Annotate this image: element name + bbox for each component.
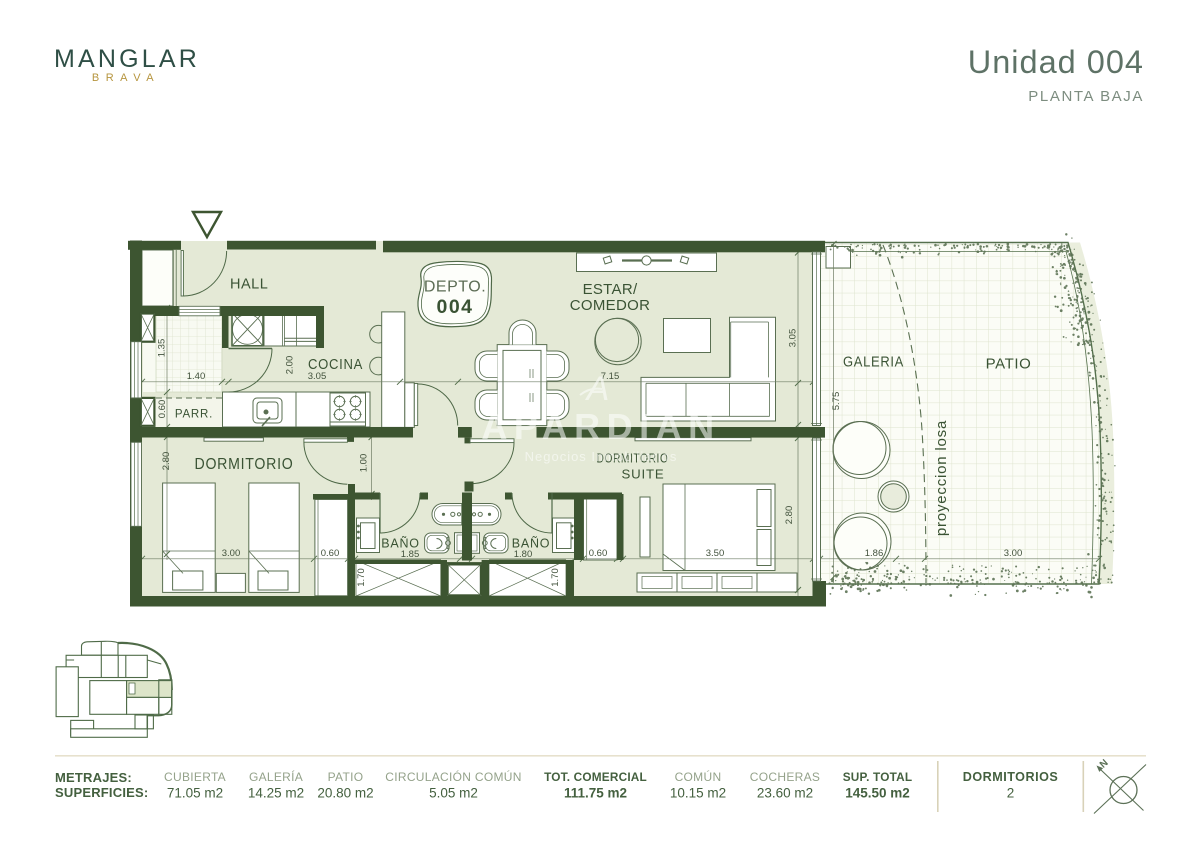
svg-text:PARR.: PARR. [175, 409, 213, 421]
svg-text:proyeccion losa: proyeccion losa [933, 420, 950, 536]
svg-text:CUBIERTA: CUBIERTA [164, 770, 226, 784]
svg-text:GALERÍA: GALERÍA [249, 769, 303, 784]
svg-text:MANGLAR: MANGLAR [54, 45, 200, 73]
svg-text:COCINA: COCINA [308, 356, 363, 373]
svg-text:145.50 m2: 145.50 m2 [845, 786, 910, 801]
svg-text:1.86: 1.86 [865, 548, 884, 559]
svg-text:COMÚN: COMÚN [675, 769, 722, 784]
svg-text:20.80 m2: 20.80 m2 [317, 786, 373, 801]
svg-text:1.80: 1.80 [514, 549, 533, 560]
svg-text:2.80: 2.80 [784, 506, 795, 525]
svg-text:COMEDOR: COMEDOR [570, 297, 650, 314]
svg-text:Unidad 004: Unidad 004 [968, 44, 1144, 80]
svg-text:ESTAR/: ESTAR/ [583, 281, 638, 298]
svg-text:1.00: 1.00 [359, 454, 370, 473]
svg-text:23.60 m2: 23.60 m2 [757, 786, 813, 801]
svg-text:1.70: 1.70 [550, 568, 561, 587]
svg-text:3.00: 3.00 [1004, 548, 1023, 559]
svg-text:PATIO: PATIO [328, 770, 364, 784]
svg-text:BAÑO: BAÑO [512, 537, 551, 551]
svg-text:DEPTO.: DEPTO. [424, 279, 486, 296]
svg-text:0.60: 0.60 [321, 548, 340, 559]
svg-text:COCHERAS: COCHERAS [750, 770, 820, 784]
svg-text:111.75 m2: 111.75 m2 [564, 786, 627, 801]
svg-text:BAÑO: BAÑO [381, 537, 420, 551]
svg-text:SUPERFICIES:: SUPERFICIES: [55, 785, 148, 800]
svg-text:1.35: 1.35 [157, 339, 168, 358]
svg-text:BRAVA: BRAVA [92, 72, 160, 84]
svg-text:2: 2 [1007, 786, 1015, 801]
svg-text:3.00: 3.00 [222, 548, 241, 559]
svg-text:3.05: 3.05 [788, 329, 799, 348]
svg-text:TOT. COMERCIAL: TOT. COMERCIAL [544, 770, 647, 784]
svg-text:10.15 m2: 10.15 m2 [670, 786, 726, 801]
svg-text:HALL: HALL [230, 277, 268, 293]
svg-text:71.05 m2: 71.05 m2 [167, 786, 223, 801]
svg-text:1.85: 1.85 [401, 549, 420, 560]
svg-text:5.05 m2: 5.05 m2 [429, 786, 478, 801]
svg-text:APARDIAN: APARDIAN [481, 406, 720, 447]
svg-text:2.80: 2.80 [161, 452, 172, 471]
svg-text:004: 004 [436, 296, 473, 318]
svg-text:3.50: 3.50 [706, 548, 725, 559]
svg-text:DORMITORIOS: DORMITORIOS [963, 770, 1059, 784]
svg-text:CIRCULACIÓN COMÚN: CIRCULACIÓN COMÚN [385, 769, 521, 784]
svg-text:1.70: 1.70 [356, 568, 367, 587]
svg-text:0.60: 0.60 [157, 400, 168, 419]
svg-text:METRAJES:: METRAJES: [55, 770, 132, 785]
svg-text:1.40: 1.40 [187, 371, 206, 382]
svg-text:GALERIA: GALERIA [843, 354, 904, 371]
svg-text:SUITE: SUITE [622, 467, 665, 482]
svg-text:Negocios Inmobiliarios: Negocios Inmobiliarios [525, 449, 678, 464]
svg-text:PLANTA BAJA: PLANTA BAJA [1028, 88, 1144, 105]
svg-text:2.00: 2.00 [285, 356, 296, 375]
svg-text:0.60: 0.60 [589, 548, 608, 559]
svg-text:DORMITORIO: DORMITORIO [195, 456, 294, 473]
svg-text:PATIO: PATIO [986, 356, 1032, 373]
svg-text:SUP. TOTAL: SUP. TOTAL [843, 770, 913, 784]
svg-text:5.75: 5.75 [831, 392, 842, 411]
svg-text:14.25 m2: 14.25 m2 [248, 786, 304, 801]
